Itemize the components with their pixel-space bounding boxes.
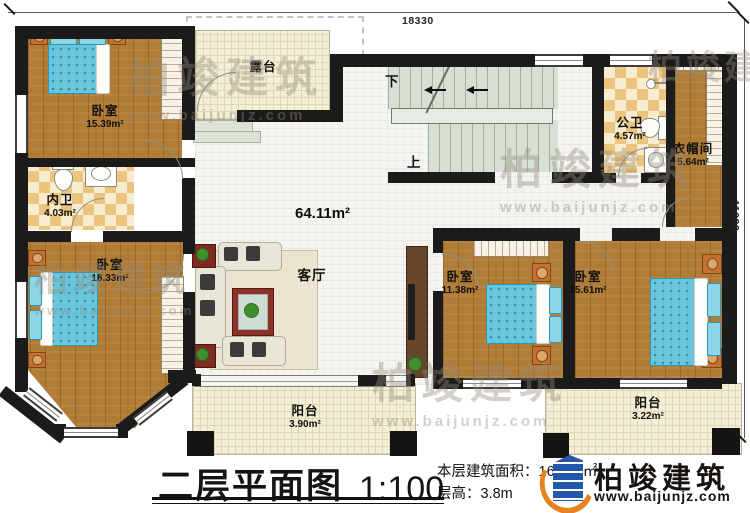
wall xyxy=(565,378,620,389)
sofa-cushion xyxy=(230,342,244,357)
wall xyxy=(15,231,71,242)
brand-url: www.baijunjz.com xyxy=(594,488,731,504)
wall xyxy=(552,172,604,183)
window xyxy=(620,378,687,389)
window xyxy=(610,54,652,67)
brand-logo-icon xyxy=(553,455,583,501)
faucet-icon xyxy=(646,79,656,89)
window xyxy=(535,54,583,67)
room-area: 11.38m² xyxy=(442,285,479,297)
room-area: 15.39m² xyxy=(86,119,123,131)
window xyxy=(15,282,28,338)
room-name: 卧室 xyxy=(96,258,123,273)
sofa-cushion xyxy=(224,247,238,261)
wall xyxy=(695,228,722,241)
room-label-bedroom-tl: 卧室 15.39m² xyxy=(70,104,140,131)
room-area: 4.57m² xyxy=(614,131,646,143)
wall xyxy=(103,231,195,242)
room-area: 4.03m² xyxy=(44,208,76,220)
wardrobe xyxy=(161,28,184,120)
terrace-parapet-dashed xyxy=(186,16,364,56)
room-label-bedroom-br: 卧室 15.61m² xyxy=(553,270,623,297)
room-name: 卧室 xyxy=(574,270,601,285)
nightstand xyxy=(532,263,551,282)
title-underline xyxy=(152,497,444,500)
bed-sheet xyxy=(96,44,110,94)
plant-icon xyxy=(197,249,208,260)
wardrobe xyxy=(473,240,549,257)
nightstand xyxy=(28,352,46,368)
dimension-line-right xyxy=(744,18,745,438)
bed-pillow xyxy=(29,310,42,340)
room-label-public-bath: 公卫 4.57m² xyxy=(595,116,665,143)
wall xyxy=(183,292,195,372)
living-area-label: 64.11m² xyxy=(295,205,350,222)
sofa-cushion xyxy=(200,300,215,316)
room-area: 3.22m² xyxy=(632,411,664,423)
room-label-bedroom-bl: 卧室 18.33m² xyxy=(75,258,145,285)
wall xyxy=(433,228,580,241)
room-area: 3.90m² xyxy=(289,419,321,431)
wall xyxy=(15,26,195,39)
wall xyxy=(433,241,443,253)
wall xyxy=(168,370,196,383)
terrace-step xyxy=(193,131,261,143)
room-label-cloakroom: 衣帽间 5.64m² xyxy=(658,142,728,169)
plan-title: 二层平面图 1:100 xyxy=(158,458,444,509)
wall xyxy=(182,178,195,238)
room-area: 15.61m² xyxy=(569,285,606,297)
window xyxy=(463,378,521,389)
bed-pillow xyxy=(707,283,721,317)
room-area: 5.64m² xyxy=(677,157,709,169)
faucet-icon xyxy=(654,82,666,84)
room-name: 客厅 xyxy=(298,268,327,284)
tv-icon xyxy=(408,284,415,340)
room-name: 卧室 xyxy=(446,270,473,285)
sofa-cushion xyxy=(252,342,266,357)
room-name: 阳台 xyxy=(291,404,318,419)
bed-pillow xyxy=(707,322,721,356)
nightstand xyxy=(28,250,46,266)
stairs-down-label: 下 xyxy=(385,70,399,90)
wall xyxy=(388,172,495,183)
window xyxy=(15,95,28,153)
wall xyxy=(358,375,386,386)
dimension-tick xyxy=(3,3,15,15)
wall xyxy=(183,242,195,254)
column xyxy=(187,431,214,456)
wall xyxy=(406,374,415,386)
room-label-inner-bath: 内卫 4.03m² xyxy=(25,193,95,220)
bed-sheet xyxy=(694,278,708,366)
room-label-living: 客厅 xyxy=(282,268,342,284)
dimension-line-top xyxy=(8,12,740,13)
plant-icon xyxy=(197,349,208,360)
sofa-cushion xyxy=(246,246,260,261)
room-label-balcony-l: 阳台 3.90m² xyxy=(270,404,340,431)
wall xyxy=(687,378,722,389)
stairs-direction-arrow xyxy=(424,86,446,94)
room-name: 内卫 xyxy=(46,193,73,208)
room-name: 公卫 xyxy=(616,116,643,131)
stairs-up-label: 上 xyxy=(407,151,421,171)
bay-window xyxy=(64,427,118,438)
wardrobe xyxy=(161,276,184,374)
room-name: 衣帽间 xyxy=(673,142,714,157)
column xyxy=(543,433,569,458)
stairs-handrail xyxy=(391,108,553,124)
wall xyxy=(433,378,463,389)
bed-pillow xyxy=(29,276,42,306)
wall xyxy=(237,110,333,122)
wall xyxy=(182,26,195,140)
bed-pillow xyxy=(549,316,562,343)
stairs-direction-arrow xyxy=(466,86,488,94)
nightstand xyxy=(532,346,551,365)
nightstand xyxy=(702,254,722,274)
room-label-balcony-r: 阳台 3.22m² xyxy=(613,396,683,423)
sink-icon xyxy=(91,166,111,181)
room-name: 卧室 xyxy=(91,104,118,119)
plant-icon xyxy=(245,304,258,317)
room-area: 18.33m² xyxy=(91,273,128,285)
dimension-right-label: 11020 xyxy=(729,200,741,231)
wall xyxy=(330,54,737,67)
stairs-lower-flight xyxy=(428,121,558,172)
column xyxy=(390,431,417,456)
wall xyxy=(563,241,575,378)
room-label-terrace: 露台 xyxy=(228,60,298,75)
sofa-cushion xyxy=(200,274,215,290)
room-name: 阳台 xyxy=(634,396,661,411)
wall xyxy=(15,368,28,392)
title-underline xyxy=(152,503,444,504)
floorplan-canvas: 下 上 xyxy=(0,0,750,513)
wall xyxy=(521,378,565,389)
plan-title-text: 二层平面图 xyxy=(158,458,343,509)
room-label-bedroom-bc: 卧室 11.38m² xyxy=(425,270,495,297)
room-name: 露台 xyxy=(249,60,276,75)
wall xyxy=(612,228,660,241)
wall xyxy=(433,291,443,378)
bed-sheet xyxy=(536,284,550,344)
plant-icon xyxy=(409,358,421,370)
dimension-top-label: 18330 xyxy=(402,15,434,27)
